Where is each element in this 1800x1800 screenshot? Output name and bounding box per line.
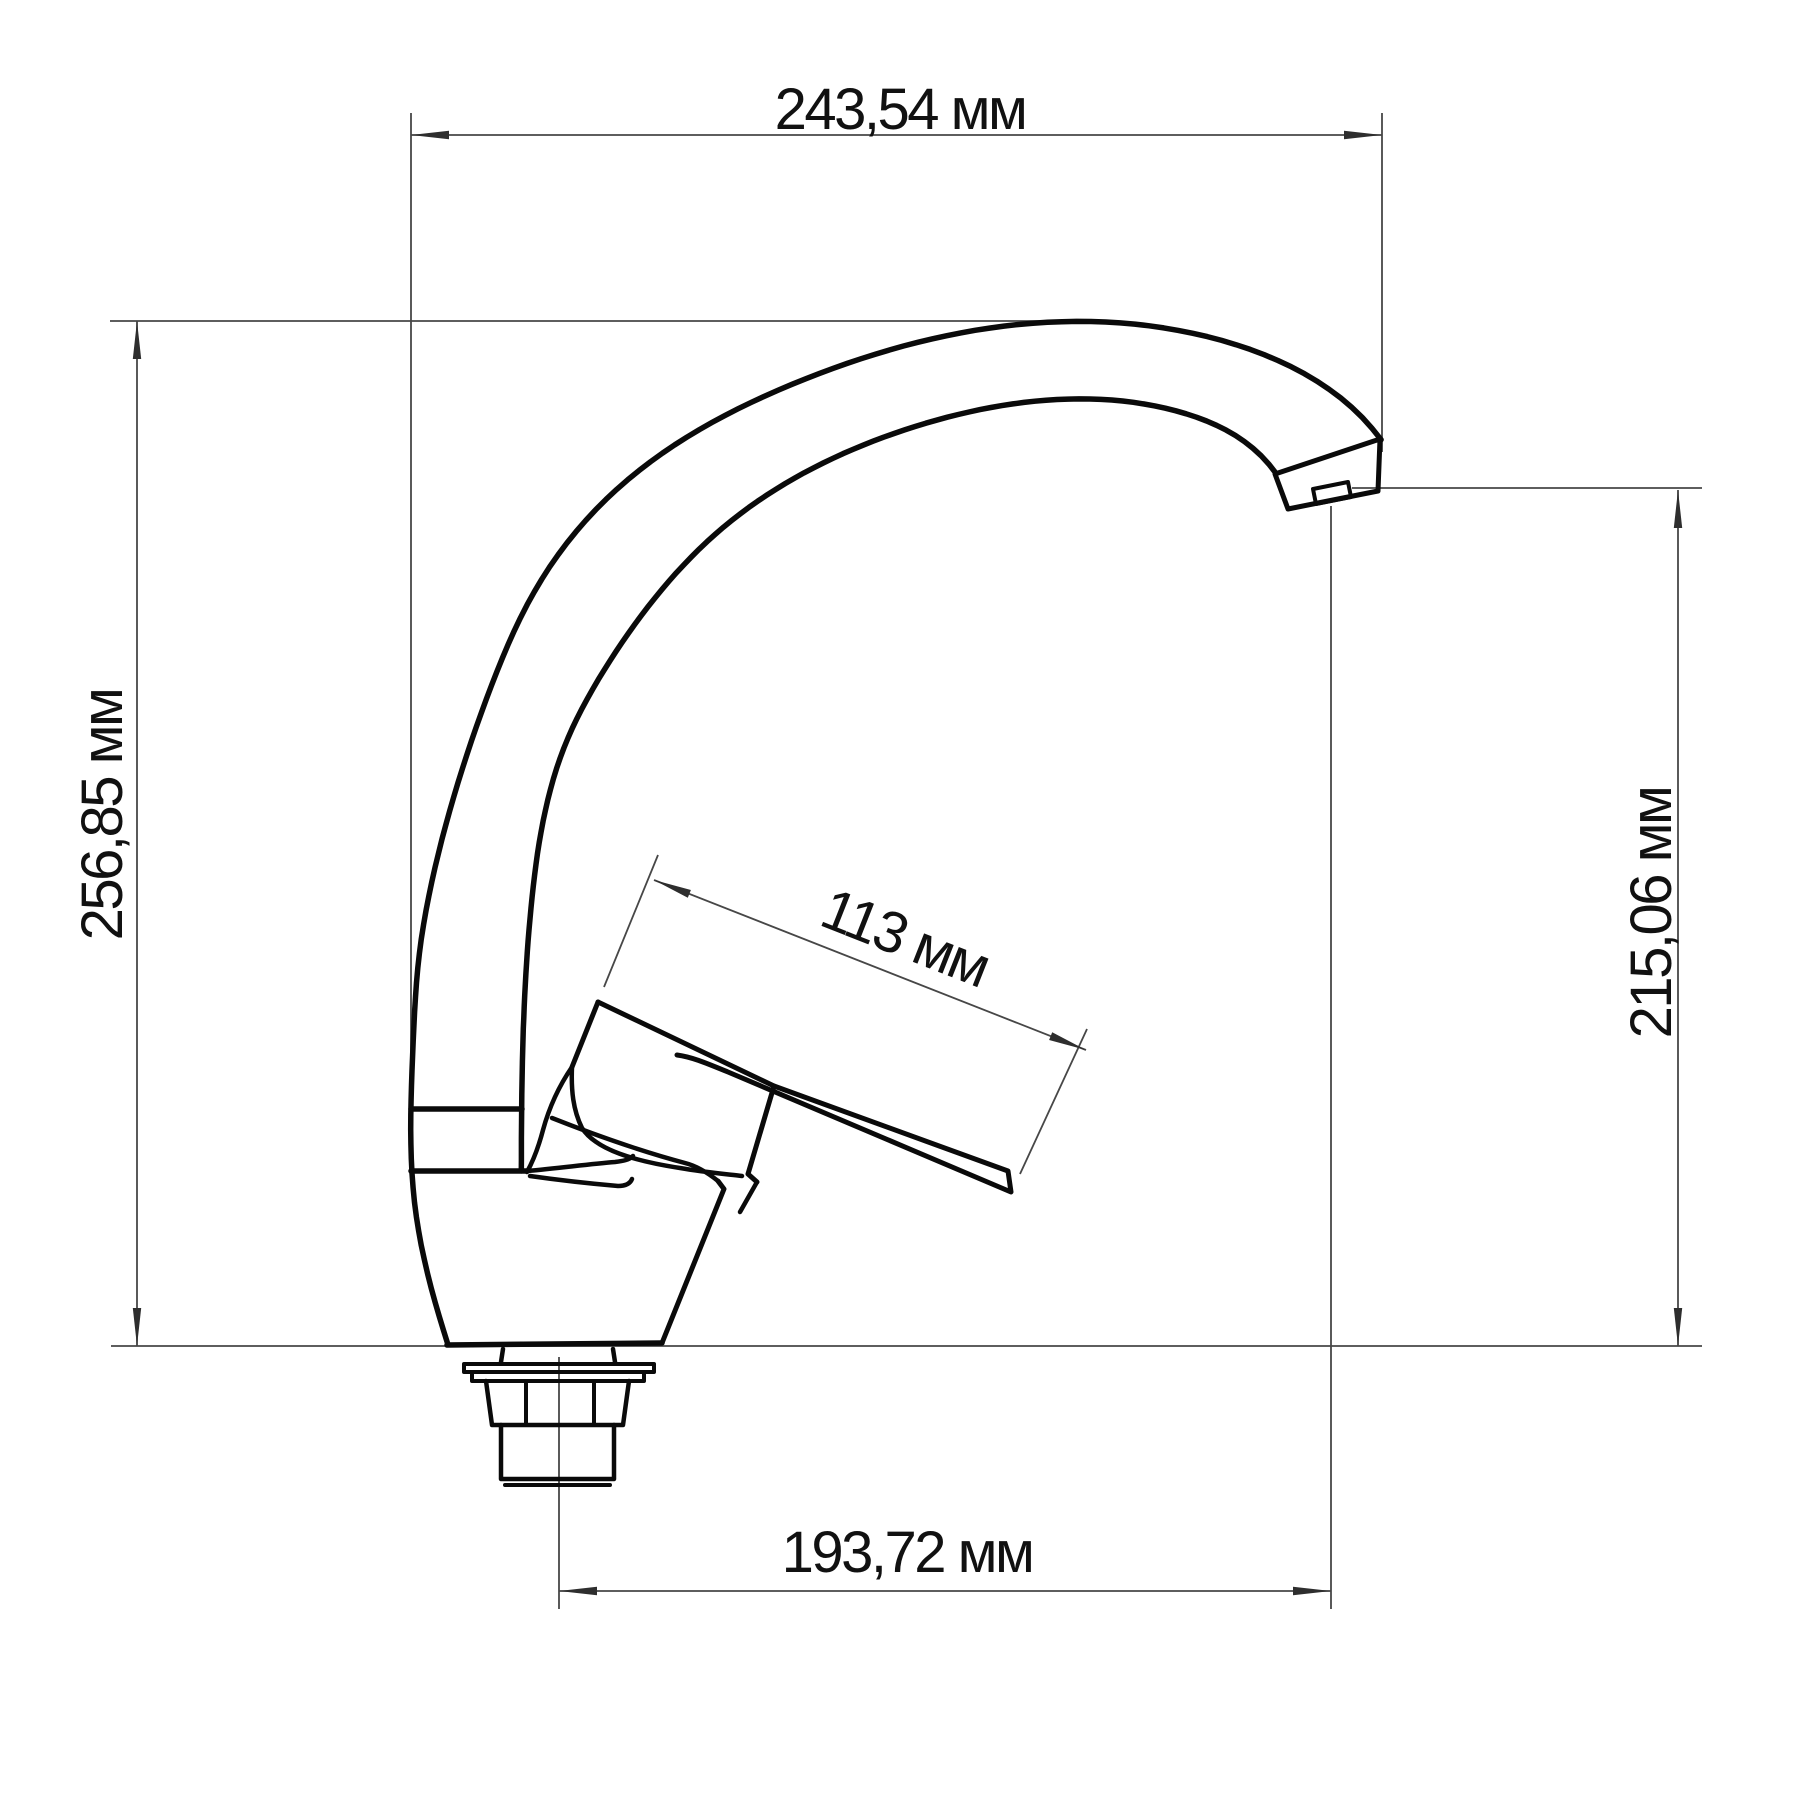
svg-text:256,85 мм: 256,85 мм bbox=[70, 690, 135, 941]
svg-text:243,54 мм: 243,54 мм bbox=[775, 77, 1026, 142]
svg-text:193,72 мм: 193,72 мм bbox=[782, 1520, 1033, 1585]
svg-text:215,06 мм: 215,06 мм bbox=[1619, 788, 1684, 1039]
